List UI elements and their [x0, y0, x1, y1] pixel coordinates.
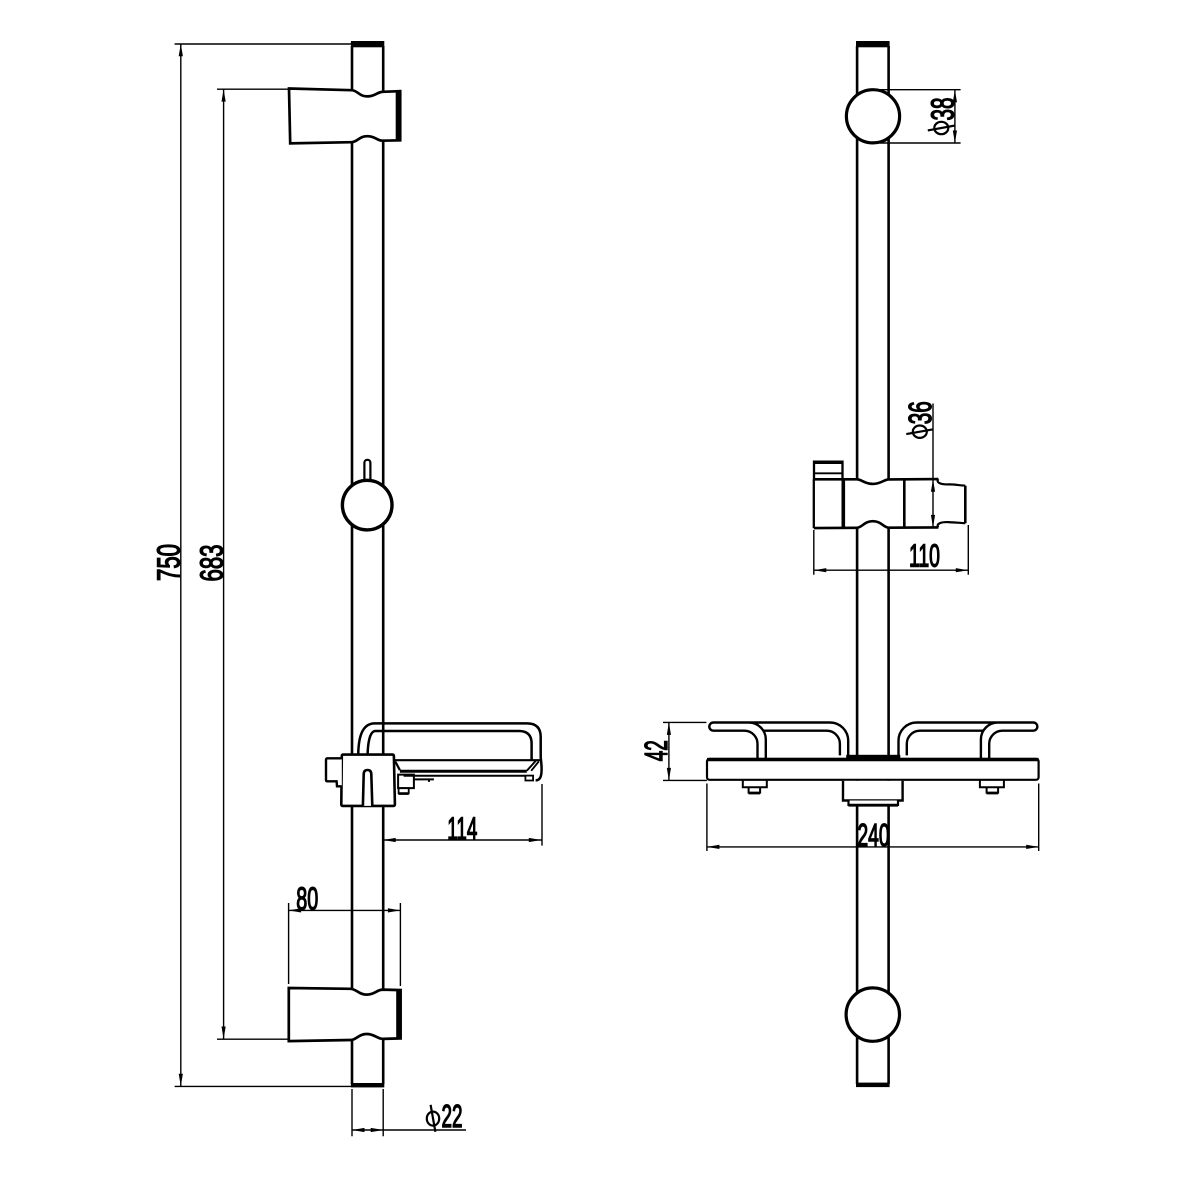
svg-text:42: 42	[638, 740, 674, 761]
svg-text:38: 38	[925, 98, 961, 121]
svg-text:750: 750	[150, 544, 186, 581]
svg-text:114: 114	[447, 810, 477, 846]
svg-text:36: 36	[902, 401, 938, 424]
svg-text:683: 683	[193, 545, 229, 582]
svg-text:110: 110	[909, 538, 940, 574]
svg-text:240: 240	[858, 817, 890, 853]
svg-text:22: 22	[442, 1098, 463, 1134]
svg-text:80: 80	[296, 881, 318, 917]
